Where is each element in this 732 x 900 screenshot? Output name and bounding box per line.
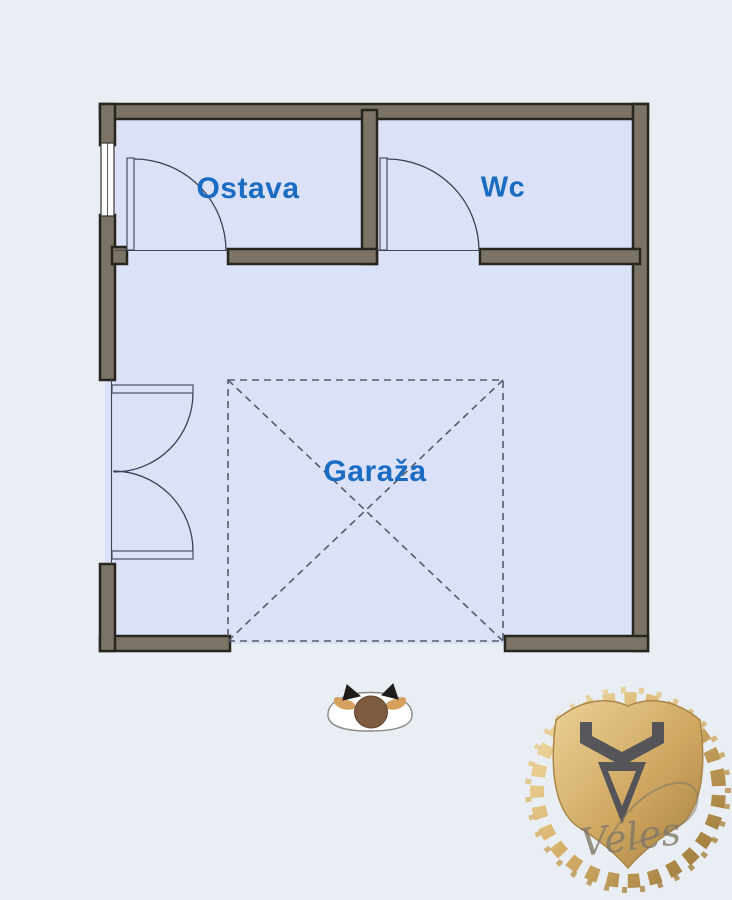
wall-bottom-right xyxy=(505,636,648,651)
cat-icon xyxy=(328,684,412,731)
wall-below-ostava xyxy=(228,249,377,264)
veles-emblem: Veles xyxy=(515,677,732,900)
wall-right xyxy=(633,104,648,651)
room-label-garaza: Garaža xyxy=(323,455,426,489)
floorplan-svg: Veles xyxy=(0,0,732,900)
room-label-ostava: Ostava xyxy=(196,172,299,206)
room-label-wc: Wc xyxy=(481,172,526,205)
wall-bottom-left xyxy=(100,636,230,651)
wall-left-middle xyxy=(100,215,115,380)
wall-left-top xyxy=(100,104,115,145)
cat-head-patch xyxy=(355,696,388,728)
wall-divider-ostava-wc xyxy=(362,110,377,264)
wall-below-wc xyxy=(480,249,640,264)
floorplan-canvas: Veles Ostava Wc Garaža xyxy=(0,0,732,900)
wall-left-bottom xyxy=(100,564,115,651)
wall-junction-stub xyxy=(112,247,127,264)
window-symbol xyxy=(101,143,114,216)
